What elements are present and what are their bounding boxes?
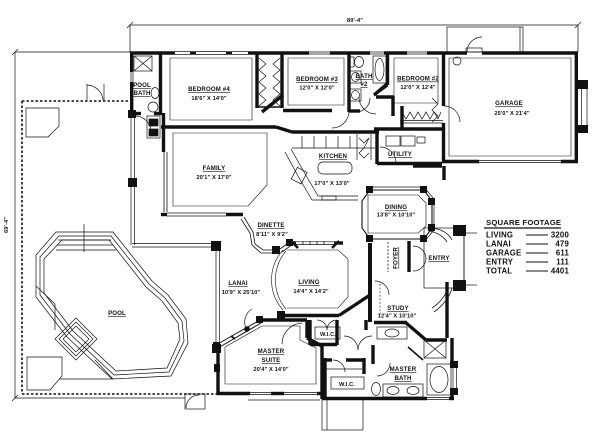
svg-text:LANAI: LANAI [228,280,248,287]
svg-text:LIVING: LIVING [486,231,513,240]
svg-text:4401: 4401 [551,267,570,276]
svg-text:POOL: POOL [108,310,126,317]
svg-text:W.I.C.: W.I.C. [339,382,355,388]
svg-text:FAMILY: FAMILY [203,165,226,172]
svg-text:TOTAL: TOTAL [486,267,512,276]
svg-text:25'0" X 21'4": 25'0" X 21'4" [494,111,530,117]
svg-text:#2: #2 [360,81,368,88]
svg-text:ENTRY: ENTRY [486,258,514,267]
svg-text:3200: 3200 [551,231,570,240]
svg-text:DINETTE: DINETTE [257,222,284,229]
svg-text:14'4" X 14'2": 14'4" X 14'2" [293,289,329,295]
svg-text:ENTRY: ENTRY [428,255,449,262]
svg-text:BATH: BATH [355,73,372,80]
svg-text:89'-4": 89'-4" [347,18,363,24]
svg-text:MASTER: MASTER [390,366,417,373]
svg-text:17'0" X 13'0": 17'0" X 13'0" [314,181,350,187]
svg-text:8'11" X 9'2": 8'11" X 9'2" [256,232,288,238]
svg-text:W.I.C.: W.I.C. [320,332,336,338]
svg-text:BATH: BATH [394,375,411,382]
svg-text:611: 611 [556,249,570,258]
svg-text:STUDY: STUDY [387,305,408,312]
svg-text:BEDROOM #3: BEDROOM #3 [296,76,338,83]
svg-text:13'8" X 10'10": 13'8" X 10'10" [377,213,416,219]
svg-text:20'1" X 17'0": 20'1" X 17'0" [196,175,232,181]
svg-text:GARAGE: GARAGE [495,100,523,107]
svg-text:479: 479 [555,240,569,249]
svg-text:BEDROOM #2: BEDROOM #2 [397,76,439,83]
svg-text:12'0" X 12'0": 12'0" X 12'0" [299,86,335,92]
svg-text:SUITE: SUITE [262,357,281,364]
svg-text:BATH: BATH [133,90,150,97]
svg-text:KITCHEN: KITCHEN [319,153,347,160]
svg-text:12'4" X 10'10": 12'4" X 10'10" [378,314,417,320]
svg-text:POOL: POOL [133,82,151,89]
svg-text:18'6" X 14'0": 18'6" X 14'0" [191,96,227,102]
svg-text:LIVING: LIVING [298,279,319,286]
svg-text:BEDROOM #4: BEDROOM #4 [188,86,230,93]
svg-text:FOYER: FOYER [393,247,400,269]
svg-text:GARAGE: GARAGE [486,249,521,258]
svg-text:DINING: DINING [385,204,407,211]
svg-text:10'9" X 25'10": 10'9" X 25'10" [222,290,261,296]
svg-text:SQUARE FOOTAGE: SQUARE FOOTAGE [486,218,561,227]
svg-text:UTILITY: UTILITY [388,151,412,158]
svg-text:69'-4": 69'-4" [4,217,10,233]
svg-text:LANAI: LANAI [486,240,511,249]
svg-text:12'0" X 12'4": 12'0" X 12'4" [400,85,436,91]
svg-text:111: 111 [556,258,569,267]
svg-text:20'4" X 14'0": 20'4" X 14'0" [253,367,289,373]
svg-text:MASTER: MASTER [258,348,285,355]
